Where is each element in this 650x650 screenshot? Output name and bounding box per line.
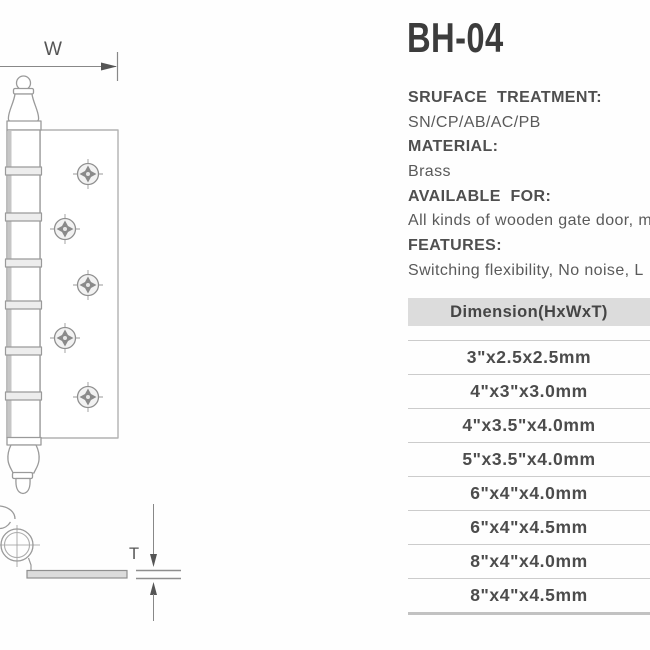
spec-surface-treatment: SRUFACE TREATMENT: SN/CP/AB/AC/PB [408, 86, 650, 135]
dimension-row: 6"x4"x4.5mm [408, 511, 650, 545]
spec-available-for: AVAILABLE FOR: All kinds of wooden gate … [408, 185, 650, 234]
spec-features: FEATURES: Switching flexibility, No nois… [408, 234, 650, 283]
thickness-dimension: T [129, 504, 181, 621]
spec-material: MATERIAL: Brass [408, 135, 650, 184]
width-dimension-label: W [44, 39, 62, 60]
leaf-side-profile [27, 571, 127, 579]
dimension-row: 6"x4"x4.0mm [408, 477, 650, 511]
spec-value: Brass [408, 160, 650, 185]
dimension-row: 8"x4"x4.0mm [408, 545, 650, 579]
hinge-bottom-finial-icon [7, 438, 41, 494]
thickness-arrow-up-icon [150, 582, 157, 595]
dimension-row: 3"x2.5x2.5mm [408, 341, 650, 375]
width-dimension: W [0, 39, 118, 81]
barrel-end-circle [1, 529, 33, 561]
spec-value: All kinds of wooden gate door, m [408, 209, 650, 234]
hinge-barrel [6, 130, 42, 438]
dimension-row: 4"x3"x3.0mm [408, 375, 650, 409]
hinge-front-view [6, 76, 119, 494]
spec-value: SN/CP/AB/AC/PB [408, 111, 650, 136]
spec-label: FEATURES: [408, 234, 650, 259]
dimension-row: 5"x3.5"x4.0mm [408, 443, 650, 477]
dimension-row: 4"x3.5"x4.0mm [408, 409, 650, 443]
thickness-arrow-down-icon [150, 554, 157, 567]
spec-list: SRUFACE TREATMENT: SN/CP/AB/AC/PB MATERI… [408, 86, 650, 284]
width-arrow-icon [101, 63, 117, 71]
spec-label: SRUFACE TREATMENT: [408, 86, 650, 111]
dimension-table-body: 3"x2.5x2.5mm 4"x3"x3.0mm 4"x3.5"x4.0mm 5… [408, 340, 650, 615]
spec-label: MATERIAL: [408, 135, 650, 160]
dimension-table-header: Dimension(HxWxT) [408, 298, 650, 326]
hinge-technical-drawing: W [0, 0, 200, 650]
thickness-dimension-label: T [129, 545, 139, 563]
spec-value: Switching flexibility, No noise, L [408, 259, 650, 284]
product-model-title: BH-04 [407, 14, 504, 62]
hinge-side-view [0, 506, 127, 578]
spec-label: AVAILABLE FOR: [408, 185, 650, 210]
dimension-row: 8"x4"x4.5mm [408, 579, 650, 615]
hinge-top-finial-icon [7, 76, 41, 130]
dimension-table: Dimension(HxWxT) 3"x2.5x2.5mm 4"x3"x3.0m… [408, 298, 650, 615]
